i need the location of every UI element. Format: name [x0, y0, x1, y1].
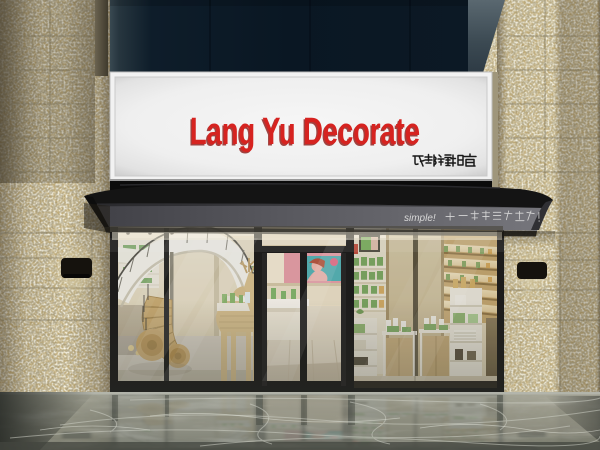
svg-text:simple!: simple!: [404, 213, 436, 224]
svg-text:Lang Yu Decorate: Lang Yu Decorate: [190, 111, 420, 153]
